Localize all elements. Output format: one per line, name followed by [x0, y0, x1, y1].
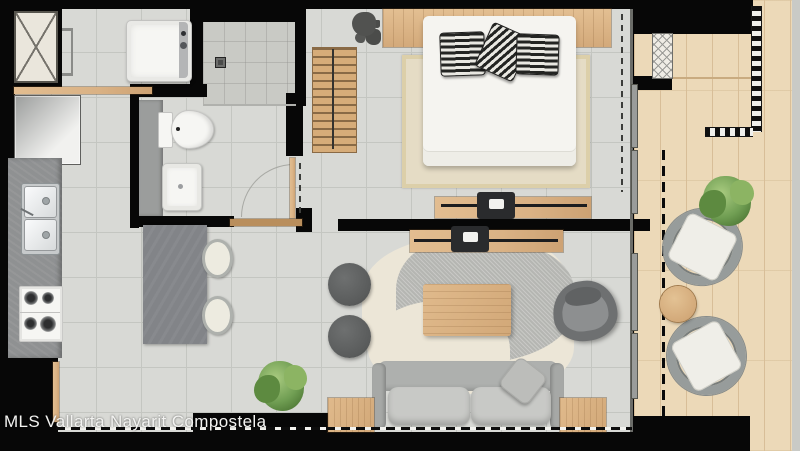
sliding-door-panel-1: [631, 84, 638, 148]
wall-bathroom-left: [130, 95, 139, 228]
bar-stool-1: [202, 239, 233, 278]
sink-drain-1: [42, 197, 50, 205]
wall-top: [0, 0, 655, 9]
shower-glass-line: [203, 104, 296, 106]
wardrobe-bench-rail: [332, 49, 334, 149]
exterior-wall-strip: [792, 0, 800, 451]
entry-door-track: [62, 28, 73, 76]
wall-balcony-bottom: [634, 416, 750, 451]
sliding-door-panel-3: [631, 253, 638, 331]
bed-pillow-right: [515, 33, 559, 75]
wall-bottom: [52, 432, 652, 451]
potted-plant-living: [258, 361, 304, 411]
watermark-text: MLS Vallarta Nayarit Compostela: [4, 412, 266, 432]
hall-wall-cap: [230, 219, 302, 226]
entry-threshold: [14, 87, 152, 94]
sliding-door-panel-4: [631, 333, 638, 399]
outdoor-round-table: [660, 286, 696, 322]
stove-burner-3: [24, 317, 37, 330]
pouf-2: [328, 315, 371, 358]
stove-burner-4: [40, 316, 56, 332]
toilet-flush-dot: [176, 127, 180, 131]
sofa-arm-left: [372, 363, 386, 429]
wall-balcony-top: [632, 0, 753, 34]
sliding-door-panel-2: [631, 150, 638, 214]
bathroom-door-leaf: [290, 158, 295, 218]
washer-control-panel: [179, 22, 188, 78]
wall-shower-right: [295, 9, 306, 106]
stove-burner-1: [24, 291, 38, 305]
floor-plan: MLS Vallarta Nayarit Compostela: [0, 0, 800, 451]
stove-divider: [20, 312, 60, 313]
shower-drain: [215, 57, 226, 68]
pouf-1: [328, 263, 371, 306]
balcony-railing-horizontal: [705, 127, 753, 137]
sink-drain-2: [42, 231, 50, 239]
balcony-dashed-line: [662, 150, 665, 416]
wall-left-2: [0, 93, 15, 163]
elevator-shaft: [14, 11, 58, 83]
bedroom-plant-silhouette: [352, 12, 376, 36]
bar-stool-2: [202, 296, 233, 335]
hall-opening-dashed: [299, 163, 301, 215]
stove-burner-2: [42, 292, 54, 304]
kitchen-sink-basin-2: [24, 219, 57, 251]
washer-dial: [180, 42, 187, 49]
wall-shower-top: [193, 9, 305, 22]
bedroom-slider-dashed: [621, 14, 623, 192]
coffee-table: [423, 284, 511, 336]
wardrobe-bench: [312, 47, 357, 153]
potted-plant-balcony: [703, 176, 751, 226]
refrigerator: [14, 95, 81, 165]
bathroom-sink-drain: [178, 184, 183, 189]
sofa-seat-cushion-1: [388, 387, 470, 425]
tv-living-bracket: [463, 232, 478, 242]
balcony-railing-vertical: [751, 6, 762, 132]
wall-bathroom-right: [286, 93, 303, 156]
kitchen-island: [143, 225, 207, 344]
tv-bedroom-bracket: [489, 199, 504, 209]
wall-bottomleft-block: [0, 345, 58, 451]
hatch-column: [652, 33, 673, 79]
sofa: [372, 361, 564, 431]
